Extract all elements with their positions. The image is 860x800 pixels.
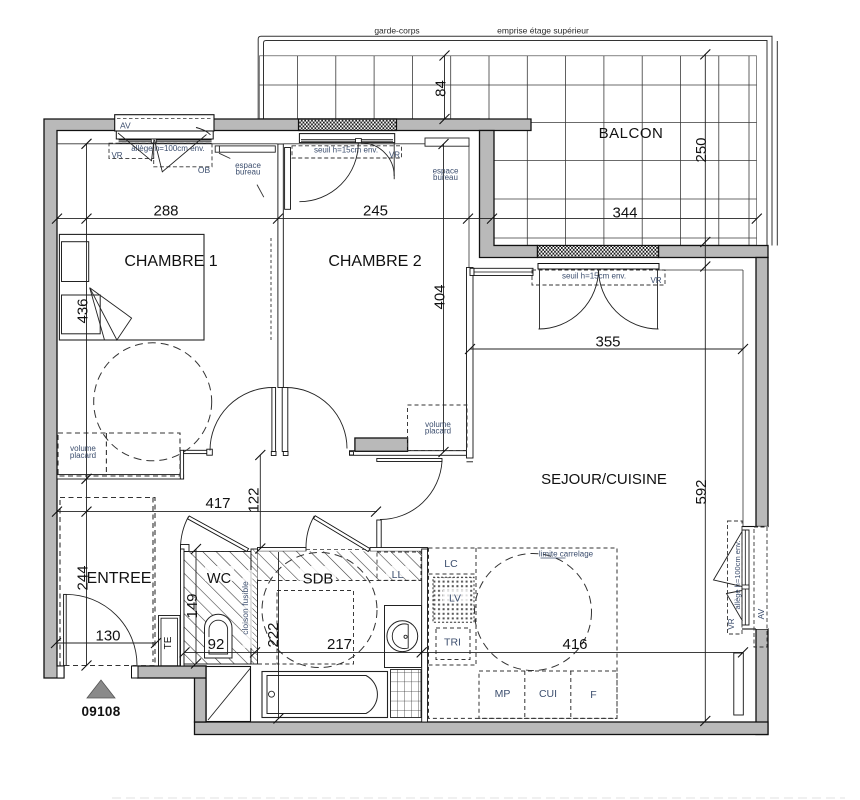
svg-text:09108: 09108	[81, 704, 120, 719]
svg-text:bureau: bureau	[433, 173, 458, 182]
svg-text:436: 436	[75, 298, 92, 323]
svg-text:VR: VR	[111, 151, 122, 160]
svg-text:130: 130	[95, 628, 120, 645]
svg-text:288: 288	[153, 203, 178, 220]
svg-text:VR: VR	[727, 618, 736, 629]
svg-text:AV: AV	[120, 121, 131, 131]
svg-text:416: 416	[562, 636, 587, 653]
svg-text:OB: OB	[198, 165, 211, 175]
svg-text:TRI: TRI	[444, 637, 461, 649]
svg-text:92: 92	[208, 636, 225, 653]
svg-text:seuil h=15cm env.: seuil h=15cm env.	[314, 145, 378, 154]
svg-text:LL: LL	[392, 569, 404, 581]
svg-text:CHAMBRE 2: CHAMBRE 2	[328, 253, 421, 270]
svg-text:F: F	[590, 689, 596, 701]
svg-text:allège h=100cm env.: allège h=100cm env.	[733, 541, 742, 610]
svg-text:bureau: bureau	[236, 168, 261, 177]
svg-text:cloison fusible: cloison fusible	[240, 581, 250, 635]
svg-text:417: 417	[205, 495, 230, 512]
svg-text:222: 222	[265, 622, 282, 647]
svg-text:placard: placard	[70, 451, 96, 460]
svg-text:122: 122	[246, 487, 263, 512]
svg-text:seuil h=15cm env.: seuil h=15cm env.	[562, 272, 626, 281]
svg-text:garde-corps: garde-corps	[374, 26, 419, 36]
svg-text:LV: LV	[449, 593, 461, 605]
svg-text:404: 404	[432, 284, 449, 309]
svg-text:SEJOUR/CUISINE: SEJOUR/CUISINE	[541, 471, 667, 488]
svg-text:BALCON: BALCON	[599, 125, 664, 142]
svg-text:TE: TE	[163, 636, 174, 649]
svg-text:emprise étage supérieur: emprise étage supérieur	[497, 26, 589, 36]
svg-text:CHAMBRE 1: CHAMBRE 1	[124, 253, 217, 270]
svg-text:VR: VR	[650, 276, 661, 285]
svg-text:84: 84	[433, 80, 450, 97]
svg-text:344: 344	[612, 204, 637, 221]
svg-text:placard: placard	[425, 427, 451, 436]
svg-text:592: 592	[693, 479, 710, 504]
svg-text:MP: MP	[495, 688, 511, 700]
svg-text:CUI: CUI	[539, 688, 557, 700]
svg-text:limite carrelage: limite carrelage	[539, 550, 594, 559]
svg-text:AV: AV	[756, 608, 766, 619]
svg-text:ENTREE: ENTREE	[87, 570, 152, 587]
svg-text:355: 355	[595, 334, 620, 351]
svg-text:WC: WC	[207, 571, 231, 587]
svg-text:245: 245	[363, 203, 388, 220]
svg-text:149: 149	[184, 593, 201, 618]
svg-text:LC: LC	[444, 558, 458, 570]
svg-text:250: 250	[693, 137, 710, 162]
svg-text:217: 217	[327, 636, 352, 653]
svg-text:SDB: SDB	[303, 571, 334, 588]
